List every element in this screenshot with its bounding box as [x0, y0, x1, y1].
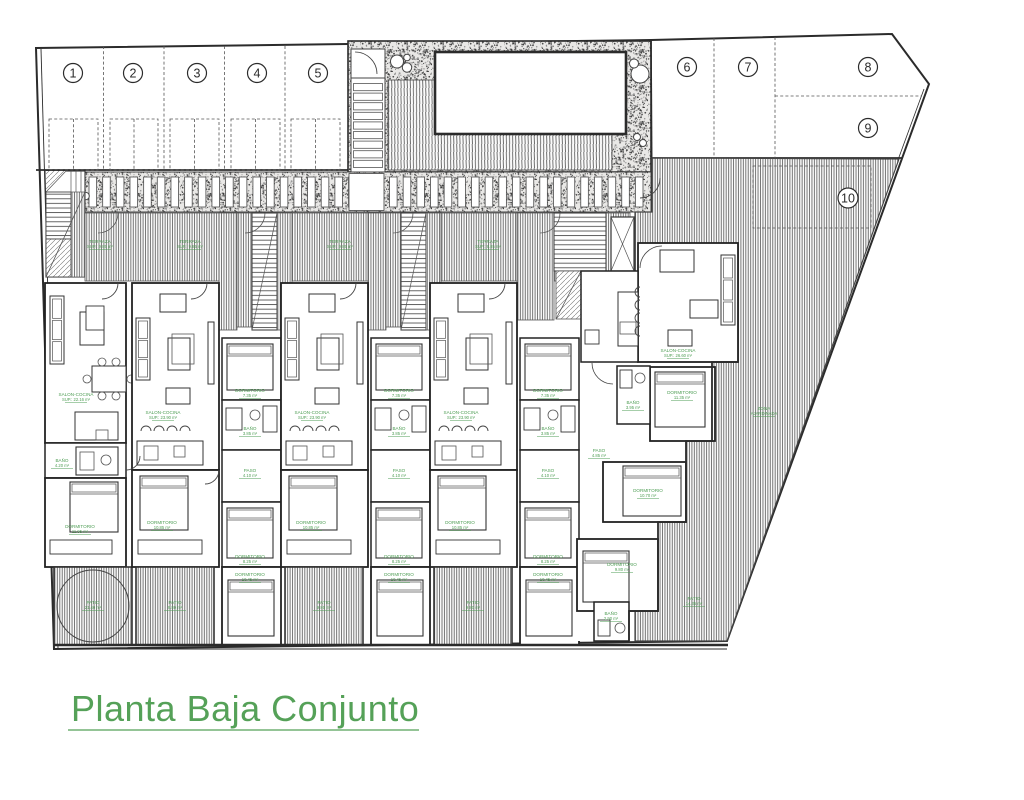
svg-text:6: 6: [684, 61, 691, 75]
svg-text:3.95 m²: 3.95 m²: [626, 405, 641, 410]
svg-text:4.20 m²: 4.20 m²: [55, 463, 70, 468]
svg-text:1: 1: [70, 67, 77, 81]
svg-text:AJARDINADA: AJARDINADA: [751, 411, 778, 416]
svg-text:3.85 m²: 3.85 m²: [392, 431, 407, 436]
svg-text:7.35 m²: 7.35 m²: [392, 393, 407, 398]
svg-text:21.40 m²: 21.40 m²: [85, 605, 102, 610]
svg-text:10.45 m²: 10.45 m²: [242, 577, 259, 582]
svg-text:5: 5: [315, 67, 322, 81]
svg-text:Planta Baja Conjunto: Planta Baja Conjunto: [71, 688, 419, 729]
svg-text:11.95 m²: 11.95 m²: [72, 529, 89, 534]
svg-text:9.80 m²: 9.80 m²: [615, 567, 630, 572]
svg-text:7: 7: [745, 61, 752, 75]
svg-text:10.85 m²: 10.85 m²: [452, 525, 469, 530]
svg-text:SUP.: 23.90 m²: SUP.: 23.90 m²: [149, 415, 178, 420]
svg-text:4.85 m²: 4.85 m²: [592, 453, 607, 458]
svg-text:11.35 m²: 11.35 m²: [674, 395, 691, 400]
svg-text:8.25 m²: 8.25 m²: [541, 559, 556, 564]
svg-text:3: 3: [194, 67, 201, 81]
svg-text:8: 8: [865, 61, 872, 75]
svg-text:10.45 m²: 10.45 m²: [540, 577, 557, 582]
svg-text:SUP.: 26.60 m²: SUP.: 26.60 m²: [664, 353, 693, 358]
svg-text:7.35 m²: 7.35 m²: [243, 393, 258, 398]
svg-text:2.90 m²: 2.90 m²: [604, 616, 619, 621]
svg-text:SUP.: 23.90 m²: SUP.: 23.90 m²: [298, 415, 327, 420]
svg-text:7.35 m²: 7.35 m²: [541, 393, 556, 398]
svg-text:4: 4: [254, 67, 261, 81]
svg-text:10: 10: [841, 192, 855, 206]
svg-text:10.85 m²: 10.85 m²: [303, 525, 320, 530]
svg-text:SUP.: 9.85 m²: SUP.: 9.85 m²: [177, 244, 203, 249]
svg-text:SUP.: 9.85 m²: SUP.: 9.85 m²: [475, 244, 501, 249]
svg-text:SUP.: 22.16 m²: SUP.: 22.16 m²: [62, 397, 91, 402]
svg-text:10.70 m²: 10.70 m²: [640, 493, 657, 498]
svg-text:9: 9: [865, 122, 872, 136]
svg-text:14.35 m²: 14.35 m²: [686, 601, 703, 606]
svg-text:4.10 m²: 4.10 m²: [243, 473, 258, 478]
svg-text:9.80 m²: 9.80 m²: [168, 605, 183, 610]
svg-text:4.10 m²: 4.10 m²: [541, 473, 556, 478]
svg-text:3.85 m²: 3.85 m²: [243, 431, 258, 436]
svg-text:SUP.: 9.85 m²: SUP.: 9.85 m²: [87, 244, 113, 249]
svg-text:4.10 m²: 4.10 m²: [392, 473, 407, 478]
svg-text:2: 2: [130, 67, 137, 81]
svg-text:8.25 m²: 8.25 m²: [392, 559, 407, 564]
svg-text:8.25 m²: 8.25 m²: [243, 559, 258, 564]
svg-text:9.80 m²: 9.80 m²: [317, 605, 332, 610]
svg-text:10.85 m²: 10.85 m²: [154, 525, 171, 530]
svg-text:3.85 m²: 3.85 m²: [541, 431, 556, 436]
svg-text:SUP.: 23.90 m²: SUP.: 23.90 m²: [447, 415, 476, 420]
svg-text:9.80 m²: 9.80 m²: [466, 605, 481, 610]
svg-text:10.45 m²: 10.45 m²: [391, 577, 408, 582]
svg-text:SUP.: 9.85 m²: SUP.: 9.85 m²: [327, 244, 353, 249]
